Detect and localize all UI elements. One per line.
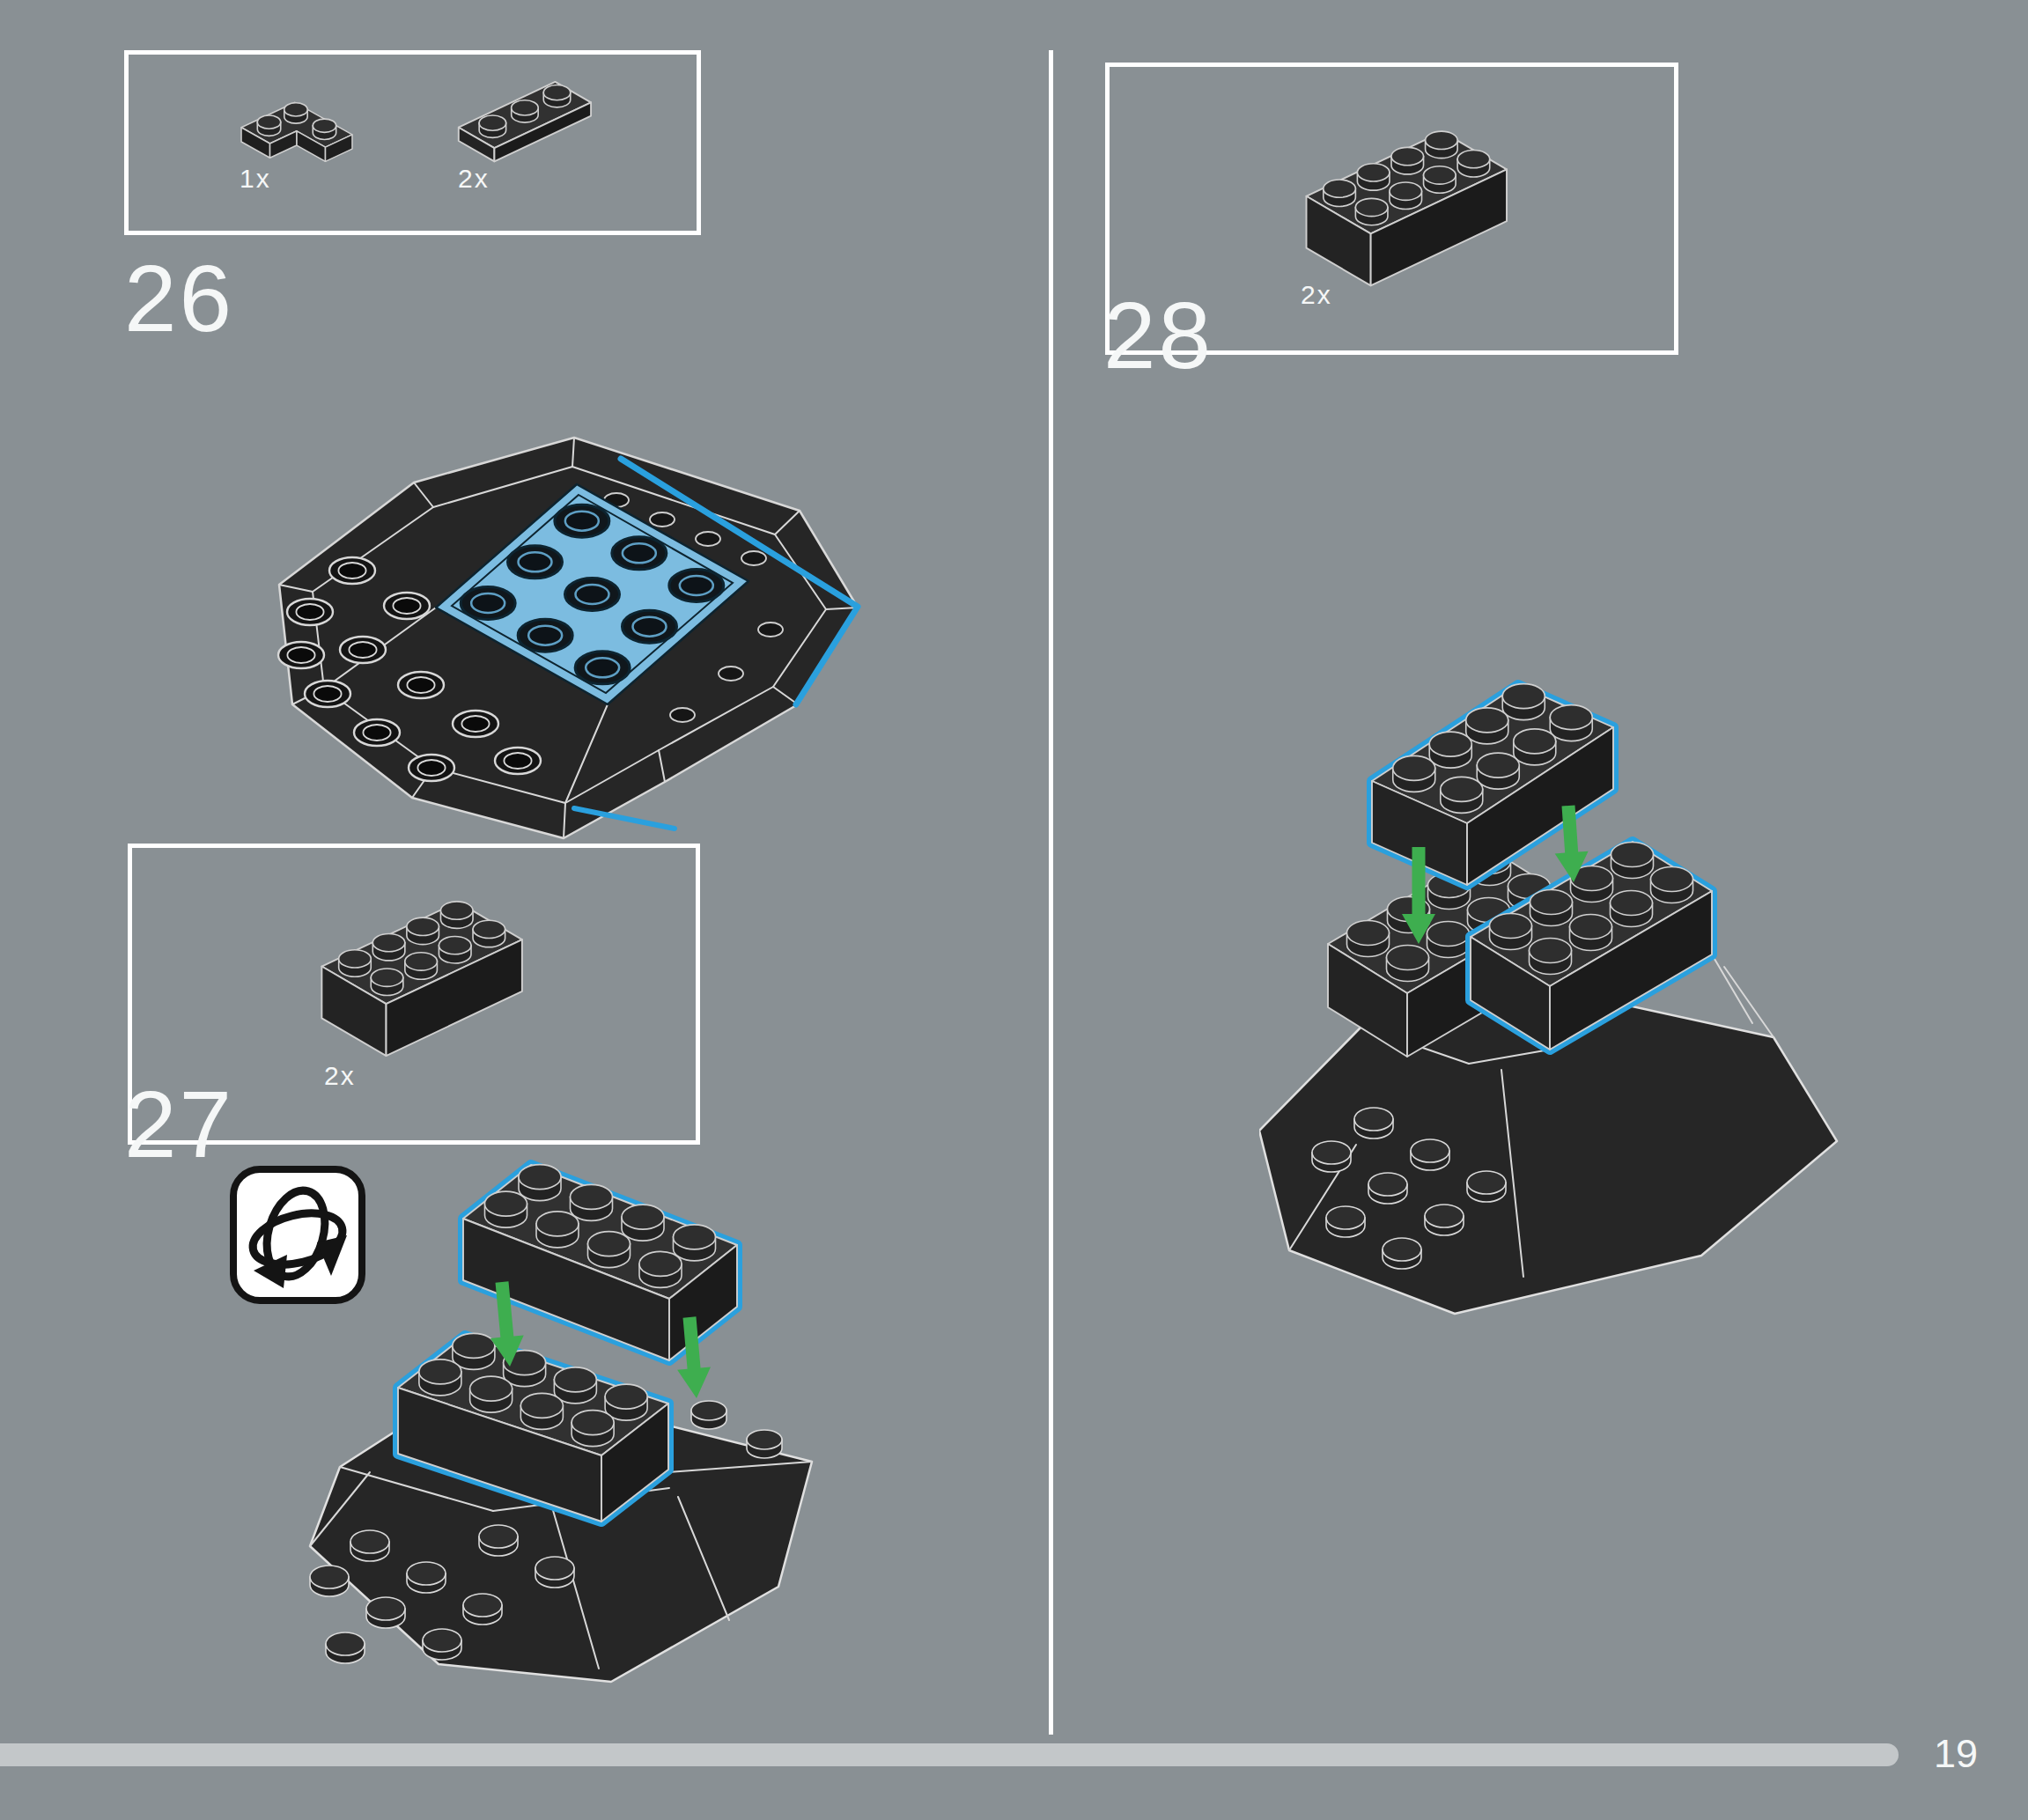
- step-26-illustration: [264, 423, 881, 863]
- part-plate-2x2-corner: [241, 102, 352, 161]
- column-divider: [1049, 50, 1053, 1735]
- page-number: 19: [1934, 1731, 1978, 1777]
- parts-box-26-drawing: [124, 50, 701, 235]
- part-count-label: 2x: [324, 1061, 356, 1091]
- parts-box-step-26: 1x 2x: [124, 50, 701, 235]
- part-count-label: 2x: [1301, 280, 1332, 310]
- step-28-illustration: [1259, 652, 1858, 1330]
- part-count-label: 1x: [240, 164, 271, 194]
- part-brick-2x4: [321, 902, 522, 1056]
- step-number-28: 28: [1103, 289, 1213, 383]
- progress-bar: [0, 1743, 1899, 1766]
- lego-instruction-page: 1x 2x 26 2x 27 2x 28 19: [0, 0, 2028, 1820]
- part-count-label: 2x: [458, 164, 490, 194]
- step-number-26: 26: [124, 252, 234, 346]
- step-number-27: 27: [124, 1078, 234, 1172]
- part-brick-2x4: [1307, 131, 1507, 285]
- step-27-illustration: [247, 1145, 845, 1726]
- part-plate-1x3: [459, 82, 591, 161]
